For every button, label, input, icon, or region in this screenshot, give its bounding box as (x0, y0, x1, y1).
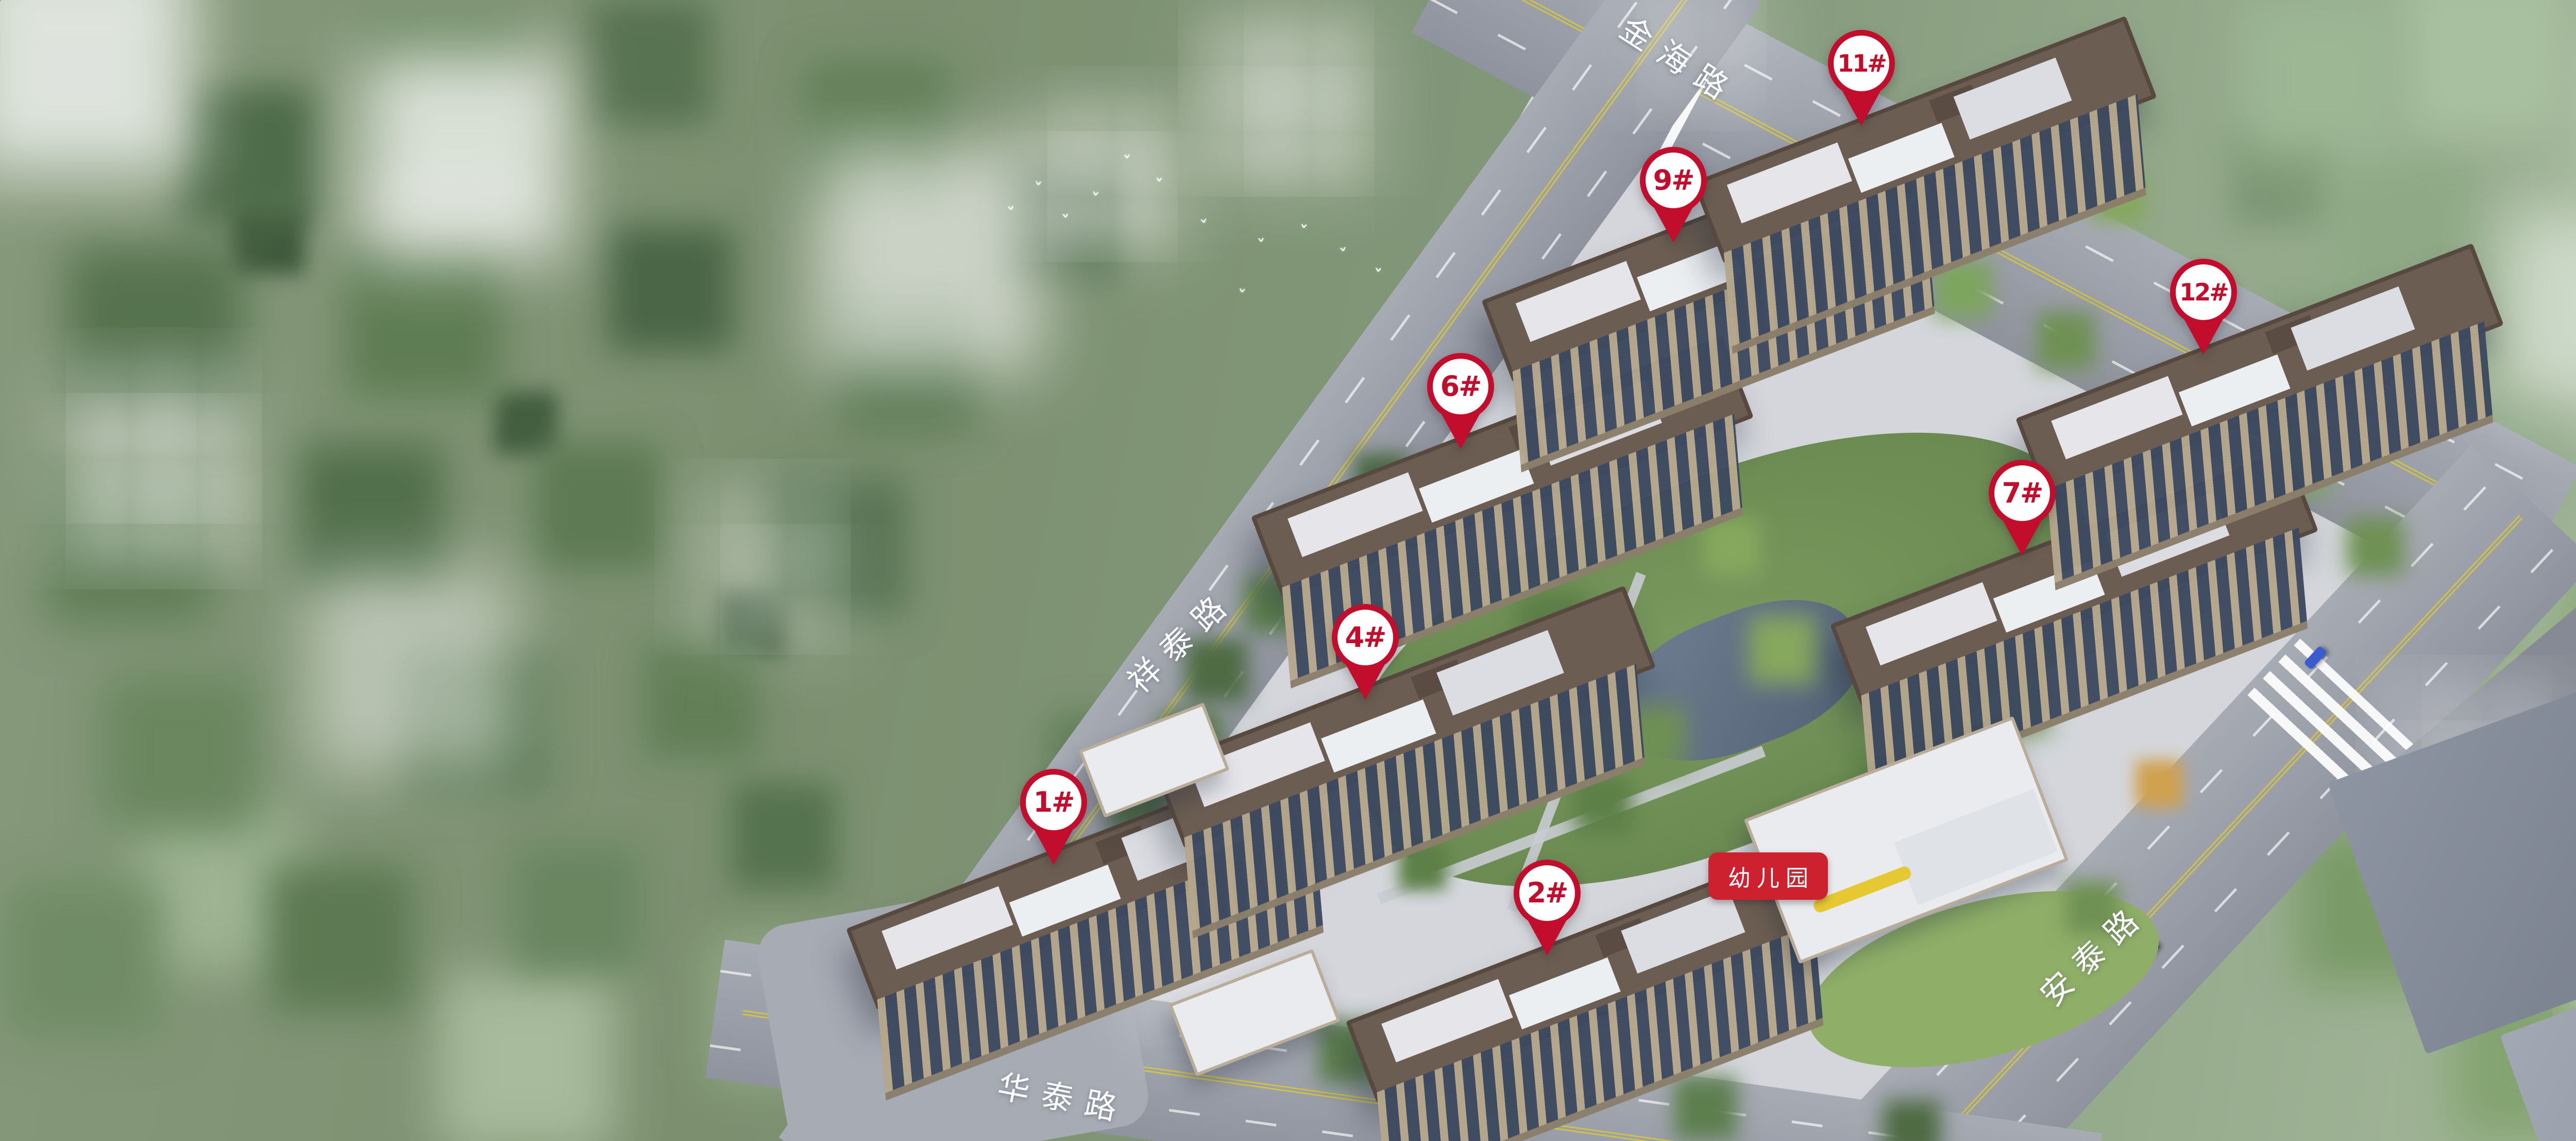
pin-head: 4# (1332, 604, 1399, 671)
marker-label: 7# (2002, 479, 2043, 507)
mist-overlay (0, 0, 1, 1)
landscape-trees (0, 0, 1, 1)
marker-label: 11# (1837, 52, 1886, 75)
building-marker-7: 7# (1989, 460, 2056, 558)
pin-head: 1# (1020, 769, 1087, 836)
aerial-site-rendering: ˇ ˇ ˇ ˇ ˇ ˇ ˇ ˇ ˇ ˇ ˇ ˇ 金海路 祥泰路 华泰路 安泰路 … (0, 0, 2576, 1141)
building-marker-12: 12# (2170, 259, 2237, 357)
pin-head: 11# (1828, 30, 1895, 97)
building-marker-11: 11# (1828, 30, 1895, 128)
building-marker-2: 2# (1514, 860, 1581, 958)
marker-label: 2# (1527, 879, 1568, 907)
pin-head: 9# (1640, 147, 1707, 214)
forest-top-right (0, 0, 1, 1)
building-marker-6: 6# (1427, 353, 1494, 451)
bird-icon: ˇ (1006, 206, 1018, 225)
pin-head: 7# (1989, 460, 2056, 527)
bird-icon: ˇ (1372, 267, 1383, 287)
forest-left (0, 0, 1, 1)
marker-label: 6# (1440, 373, 1481, 400)
kindergarten-badge: 幼儿园 (1708, 852, 1828, 900)
bird-icon: ˇ (1297, 224, 1309, 243)
pin-head: 6# (1427, 353, 1494, 420)
marker-label: 12# (2179, 280, 2228, 304)
bird-icon: ˇ (1235, 288, 1247, 308)
bird-icon: ˇ (1088, 191, 1100, 211)
bird-icon: ˇ (1338, 247, 1350, 266)
bird-icon: ˇ (1061, 213, 1071, 232)
bird-icon: ˇ (1032, 181, 1043, 200)
forest-right (0, 0, 1, 1)
bird-icon: ˇ (1199, 219, 1211, 239)
building-marker-4: 4# (1332, 604, 1399, 702)
bird-icon: ˇ (1154, 177, 1164, 196)
pin-head: 12# (2170, 259, 2237, 326)
building-marker-1: 1# (1020, 769, 1087, 867)
pin-head: 2# (1514, 860, 1581, 927)
building-marker-9: 9# (1640, 147, 1707, 245)
bird-icon: ˇ (1122, 154, 1133, 174)
marker-label: 9# (1653, 166, 1694, 194)
marker-label: 4# (1345, 624, 1386, 651)
marker-label: 1# (1033, 788, 1074, 816)
bird-icon: ˇ (1256, 238, 1267, 257)
